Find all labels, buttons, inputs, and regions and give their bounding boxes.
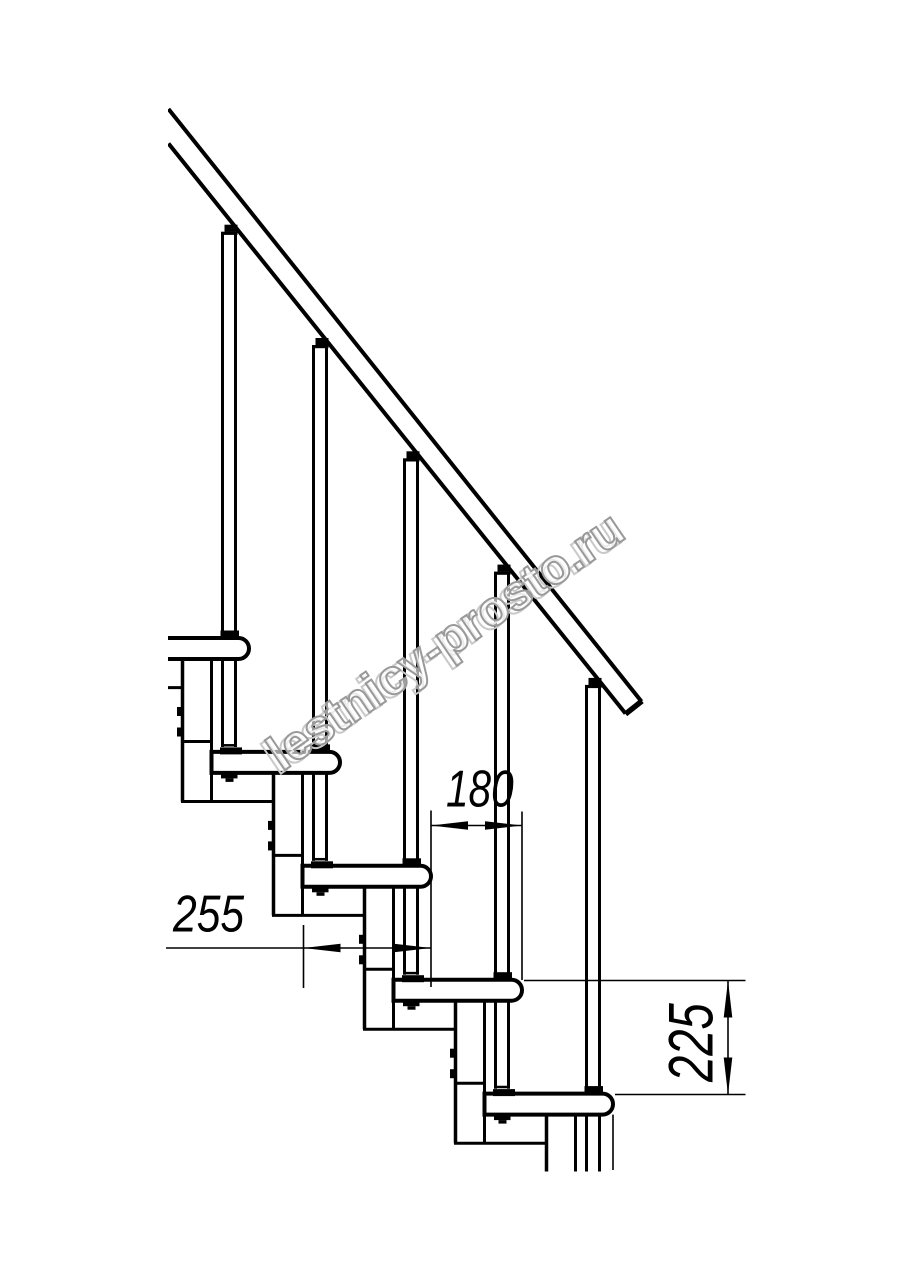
svg-text:225: 225 xyxy=(656,1002,726,1083)
svg-text:255: 255 xyxy=(172,886,245,944)
svg-text:180: 180 xyxy=(446,760,514,818)
